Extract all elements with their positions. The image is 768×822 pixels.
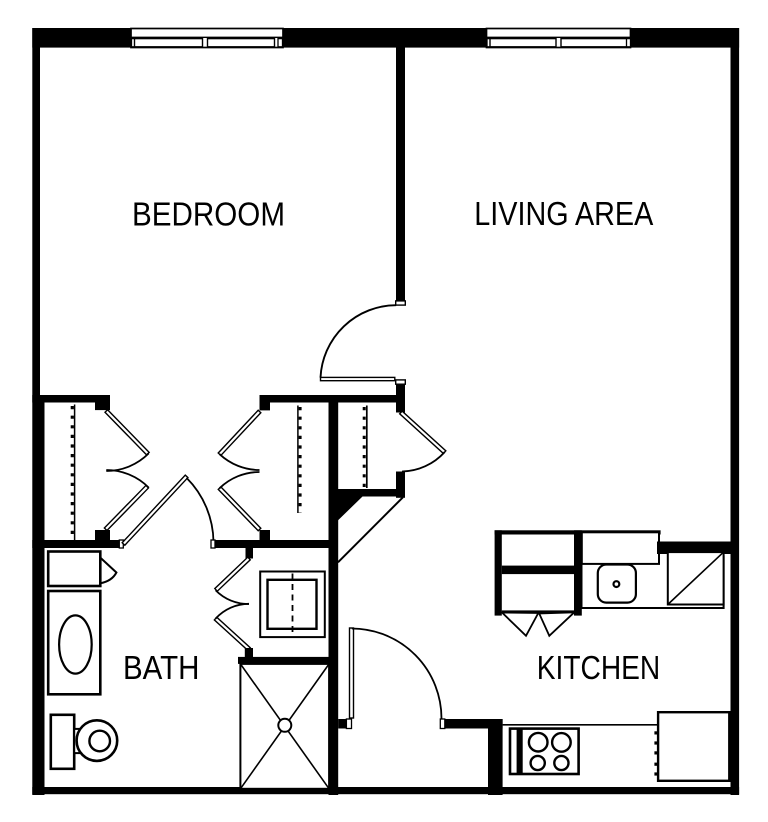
svg-text:LIVING AREA: LIVING AREA [474,195,653,232]
svg-text:KITCHEN: KITCHEN [537,649,661,686]
svg-text:BATH: BATH [123,649,200,686]
svg-text:BEDROOM: BEDROOM [132,196,285,233]
